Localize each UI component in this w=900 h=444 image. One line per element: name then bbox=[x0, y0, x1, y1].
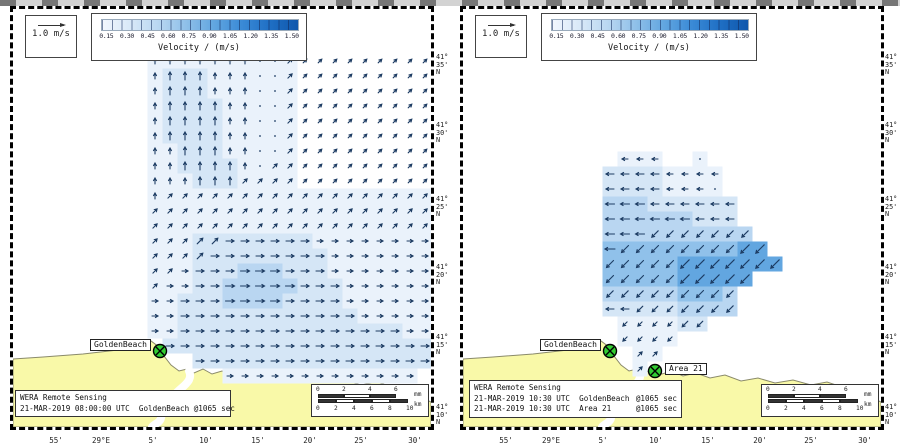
station-label: GoldenBeach bbox=[90, 339, 151, 351]
x-tick-label: 5' bbox=[139, 436, 167, 444]
colorbar-title: Velocity / (m/s) bbox=[542, 43, 756, 53]
x-tick-label: 15' bbox=[694, 436, 722, 444]
colorbar-tick-label: 0.60 bbox=[161, 32, 175, 40]
x-axis-labels: 55'29°E5'10'15'20'25'30' bbox=[13, 433, 431, 444]
y-tick-label: 41°25'N bbox=[436, 196, 454, 219]
wera-current-map-figure: 1.0 m/s 0.150.300.450.600.750.901.051.20… bbox=[0, 0, 900, 444]
scalebar-km-label: 4 bbox=[352, 406, 356, 412]
reference-arrow-label: 1.0 m/s bbox=[476, 29, 526, 39]
scalebar-mm-label: 6 bbox=[394, 387, 398, 393]
scalebar-mm-segment bbox=[318, 394, 344, 398]
scalebar-km-segment bbox=[768, 399, 786, 403]
scalebar-km-label: 10 bbox=[406, 406, 413, 412]
y-tick-label: 41°15'N bbox=[885, 334, 900, 357]
scalebar-km-label: 10 bbox=[856, 406, 863, 412]
info-box: WERA Remote Sensing21-MAR-2019 08:00:00 … bbox=[15, 390, 231, 417]
scalebar-mm-label: 0 bbox=[766, 387, 770, 393]
y-tick-label: 41°20'N bbox=[885, 264, 900, 287]
scalebar-km-label: 0 bbox=[766, 406, 770, 412]
reference-arrow-legend: 1.0 m/s bbox=[475, 15, 527, 58]
velocity-colorbar: 0.150.300.450.600.750.901.051.201.351.50… bbox=[541, 13, 757, 61]
scalebar-km-label: 8 bbox=[388, 406, 392, 412]
reference-arrow-label: 1.0 m/s bbox=[26, 29, 76, 39]
velocity-cells bbox=[148, 54, 432, 384]
scalebar-km-unit: km bbox=[414, 402, 421, 408]
colorbar-tick-label: 0.90 bbox=[652, 32, 666, 40]
info-line: WERA Remote Sensing bbox=[20, 393, 226, 404]
scalebar-km-label: 4 bbox=[802, 406, 806, 412]
scale-bar: 0246mm0246810km bbox=[761, 384, 879, 417]
scalebar-mm-label: 2 bbox=[792, 387, 796, 393]
info-line: 21-MAR-2019 10:30 UTC Area 21@1065 sec bbox=[474, 404, 677, 415]
colorbar-tick-marks bbox=[552, 20, 748, 30]
scalebar-mm-unit: mm bbox=[864, 392, 871, 398]
scalebar-km-segment bbox=[318, 399, 336, 403]
colorbar-tick-labels: 0.150.300.450.600.750.901.051.201.351.50 bbox=[96, 32, 302, 40]
map-panel-right: 1.0 m/s 0.150.300.450.600.750.901.051.20… bbox=[460, 6, 884, 430]
scalebar-mm-segment bbox=[768, 394, 794, 398]
scalebar-mm-label: 2 bbox=[342, 387, 346, 393]
colorbar-tick-label: 0.45 bbox=[140, 32, 154, 40]
scalebar-km-segment bbox=[840, 399, 858, 403]
colorbar-tick-label: 1.50 bbox=[735, 32, 749, 40]
x-tick-label: 55' bbox=[492, 436, 520, 444]
colorbar-tick-label: 1.35 bbox=[714, 32, 728, 40]
map-panel-left: 1.0 m/s 0.150.300.450.600.750.901.051.20… bbox=[10, 6, 434, 430]
scalebar-km-label: 6 bbox=[370, 406, 374, 412]
velocity-colorbar: 0.150.300.450.600.750.901.051.201.351.50… bbox=[91, 13, 307, 61]
scalebar-mm-segment bbox=[344, 394, 370, 398]
scalebar-mm-label: 4 bbox=[818, 387, 822, 393]
info-line: 21-MAR-2019 10:30 UTC GoldenBeach@1065 s… bbox=[474, 394, 677, 405]
y-tick-label: 41°20'N bbox=[436, 264, 454, 287]
x-tick-label: 25' bbox=[797, 436, 825, 444]
y-tick-label: 41°35'N bbox=[436, 54, 454, 77]
x-tick-label: 5' bbox=[589, 436, 617, 444]
reference-arrow-legend: 1.0 m/s bbox=[25, 15, 77, 58]
colorbar-tick-labels: 0.150.300.450.600.750.901.051.201.351.50 bbox=[546, 32, 752, 40]
scalebar-mm-unit: mm bbox=[414, 392, 421, 398]
scalebar-km-unit: km bbox=[864, 402, 871, 408]
x-tick-label: 29°E bbox=[537, 436, 565, 444]
scalebar-km-label: 0 bbox=[316, 406, 320, 412]
colorbar-tick-label: 0.15 bbox=[549, 32, 563, 40]
x-axis-labels: 55'29°E5'10'15'20'25'30' bbox=[463, 433, 881, 444]
colorbar-tick-label: 1.50 bbox=[285, 32, 299, 40]
y-tick-label: 41°30'N bbox=[436, 122, 454, 145]
reference-arrow-icon bbox=[38, 25, 64, 26]
y-tick-label: 41°30'N bbox=[885, 122, 900, 145]
y-tick-label: 41°10'N bbox=[436, 404, 454, 427]
colorbar-title: Velocity / (m/s) bbox=[92, 43, 306, 53]
colorbar-tick-label: 0.75 bbox=[182, 32, 196, 40]
scalebar-mm-segment bbox=[370, 394, 396, 398]
station-marker-icon bbox=[604, 345, 617, 358]
y-tick-label: 41°25'N bbox=[885, 196, 900, 219]
colorbar-tick-label: 1.35 bbox=[264, 32, 278, 40]
reference-arrow-icon bbox=[488, 25, 514, 26]
scalebar-km-segment bbox=[372, 399, 390, 403]
scale-bar: 0246mm0246810km bbox=[311, 384, 429, 417]
station-label: GoldenBeach bbox=[540, 339, 601, 351]
x-tick-label: 20' bbox=[296, 436, 324, 444]
scalebar-km-segment bbox=[786, 399, 804, 403]
colorbar-tick-label: 0.90 bbox=[202, 32, 216, 40]
scalebar-mm-label: 6 bbox=[844, 387, 848, 393]
scalebar-mm-label: 4 bbox=[368, 387, 372, 393]
info-box: WERA Remote Sensing21-MAR-2019 10:30 UTC… bbox=[469, 380, 682, 418]
current-vector-map-left bbox=[13, 9, 431, 427]
x-tick-label: 55' bbox=[42, 436, 70, 444]
station-marker-icon bbox=[154, 345, 167, 358]
y-tick-label: 41°10'N bbox=[885, 404, 900, 427]
x-tick-label: 25' bbox=[347, 436, 375, 444]
scalebar-km-label: 8 bbox=[838, 406, 842, 412]
x-tick-label: 10' bbox=[192, 436, 220, 444]
station-marker-icon bbox=[649, 365, 662, 378]
scalebar-mm-segment bbox=[794, 394, 820, 398]
scalebar-mm-label: 0 bbox=[316, 387, 320, 393]
scalebar-km-segment bbox=[822, 399, 840, 403]
info-line: WERA Remote Sensing bbox=[474, 383, 677, 394]
scalebar-mm-segment bbox=[820, 394, 846, 398]
x-tick-label: 10' bbox=[642, 436, 670, 444]
colorbar-tick-label: 0.60 bbox=[611, 32, 625, 40]
colorbar-tick-label: 0.45 bbox=[590, 32, 604, 40]
scalebar-km-label: 2 bbox=[334, 406, 338, 412]
x-tick-label: 30' bbox=[401, 436, 429, 444]
scalebar-km-segment bbox=[804, 399, 822, 403]
scalebar-km-segment bbox=[336, 399, 354, 403]
colorbar-tick-label: 1.20 bbox=[693, 32, 707, 40]
scalebar-km-segment bbox=[390, 399, 408, 403]
colorbar-tick-marks bbox=[102, 20, 298, 30]
x-tick-label: 15' bbox=[244, 436, 272, 444]
x-tick-label: 29°E bbox=[87, 436, 115, 444]
x-tick-label: 30' bbox=[851, 436, 879, 444]
info-line: 21-MAR-2019 08:00:00 UTC GoldenBeach @10… bbox=[20, 404, 226, 415]
colorbar-tick-label: 0.30 bbox=[120, 32, 134, 40]
colorbar-tick-label: 1.05 bbox=[223, 32, 237, 40]
y-tick-label: 41°15'N bbox=[436, 334, 454, 357]
colorbar-tick-label: 1.05 bbox=[673, 32, 687, 40]
x-tick-label: 20' bbox=[746, 436, 774, 444]
colorbar-tick-label: 0.15 bbox=[99, 32, 113, 40]
colorbar-gradient bbox=[101, 19, 299, 31]
colorbar-tick-label: 1.20 bbox=[243, 32, 257, 40]
y-tick-label: 41°35'N bbox=[885, 54, 900, 77]
scalebar-km-segment bbox=[354, 399, 372, 403]
colorbar-gradient bbox=[551, 19, 749, 31]
scalebar-km-label: 6 bbox=[820, 406, 824, 412]
scalebar-km-label: 2 bbox=[784, 406, 788, 412]
velocity-cells bbox=[603, 152, 783, 377]
colorbar-tick-label: 0.30 bbox=[570, 32, 584, 40]
colorbar-tick-label: 0.75 bbox=[632, 32, 646, 40]
station-label: Area 21 bbox=[665, 363, 707, 375]
